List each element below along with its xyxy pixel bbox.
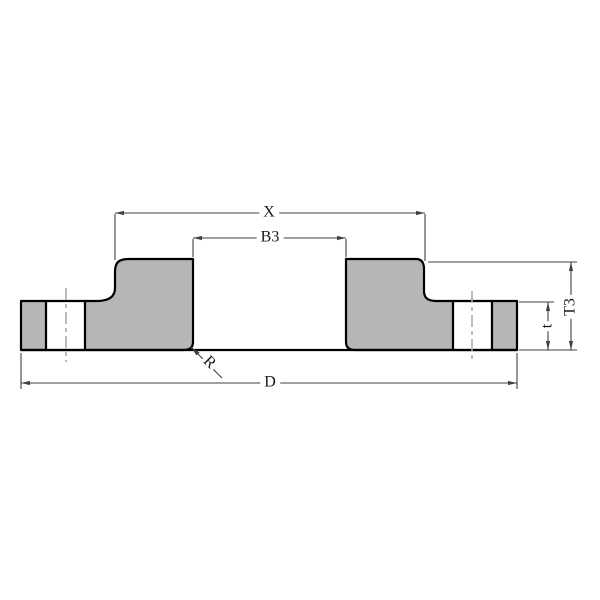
- arrowhead-b3-right: [337, 236, 346, 240]
- drawing-canvas: [0, 0, 600, 600]
- arrowhead-t3-top: [569, 262, 573, 271]
- arrowhead-t3-bottom: [569, 341, 573, 350]
- arrowhead-t-bottom: [546, 341, 550, 350]
- arrowhead-d-left: [21, 381, 30, 385]
- arrowhead-x-left: [115, 211, 124, 215]
- arrowhead-t-top: [546, 302, 550, 311]
- dim-label-d: D: [260, 375, 280, 392]
- arrowhead-d-right: [508, 381, 517, 385]
- dim-label-x: X: [259, 205, 279, 222]
- arrowhead-b3-left: [193, 236, 202, 240]
- dim-label-t: t: [540, 321, 557, 331]
- arrowhead-x-right: [416, 211, 425, 215]
- flange-cross-section-drawing: X B3 D t T3 R: [0, 0, 600, 600]
- dim-label-b3: B3: [257, 230, 284, 247]
- dim-label-t3: T3: [563, 295, 580, 319]
